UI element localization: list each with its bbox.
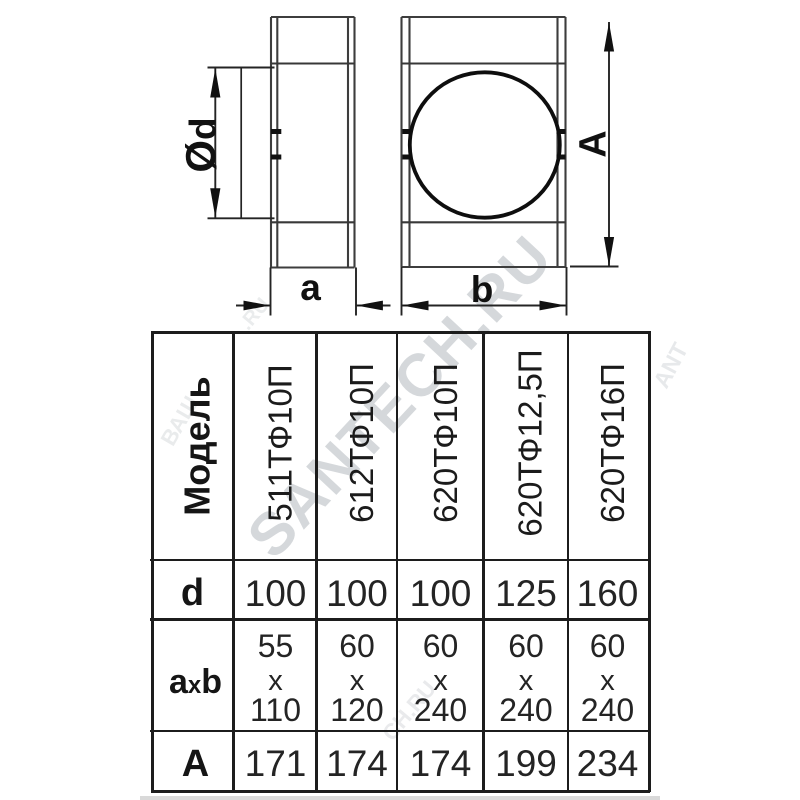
svg-text:A: A [573, 130, 615, 157]
svg-text:b: b [471, 269, 494, 310]
svg-text:Ød: Ød [178, 117, 225, 172]
svg-text:a: a [300, 267, 321, 308]
